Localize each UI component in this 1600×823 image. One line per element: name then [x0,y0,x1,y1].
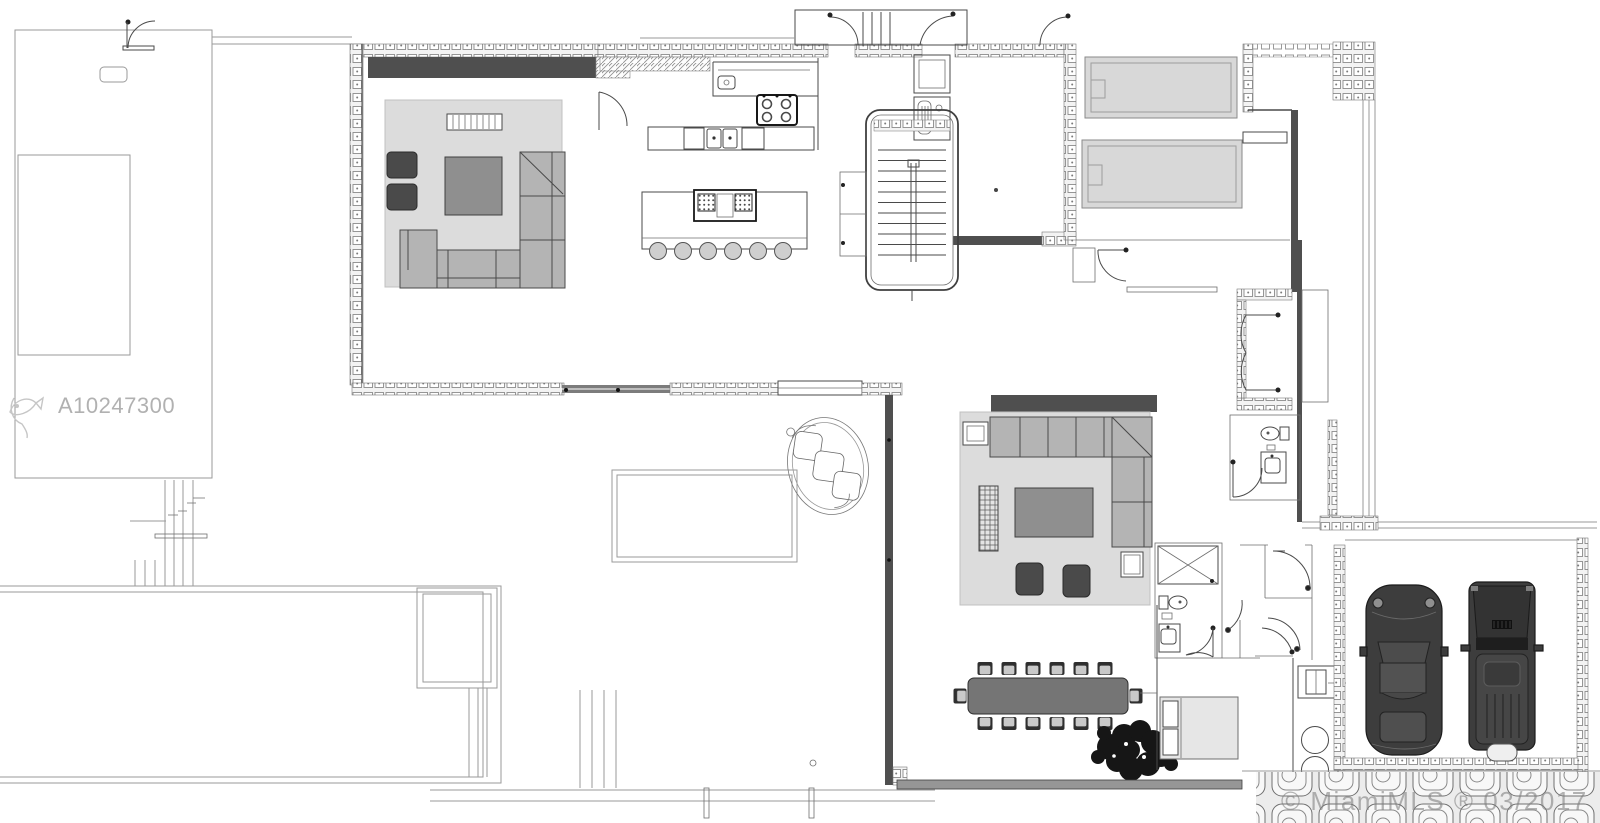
kitchen [600,57,818,260]
dining-chair [1098,662,1113,675]
master-bedrooms [1073,57,1290,292]
laundry-utility [1255,628,1346,790]
dining-chair [1074,662,1089,675]
garage [1334,538,1588,772]
mirror [1534,645,1543,651]
hall-door [1040,14,1071,46]
interior-door [599,92,627,130]
staircase [840,110,998,301]
mirror [1461,645,1470,651]
skylight [100,67,127,82]
ottoman [1063,565,1090,597]
kitchen-island [642,190,807,249]
bar-stool [700,243,717,260]
feature-wall [991,395,1157,412]
dining-chair [954,689,967,704]
window-sill [1127,287,1217,292]
bed [1085,57,1237,118]
media-wall [368,57,596,78]
dining-chair [1026,662,1041,675]
coffee-table [445,157,502,215]
coffee-table [1015,488,1093,537]
pillow [1163,729,1178,755]
suv-car [1461,582,1543,761]
living-room [368,57,630,288]
toilet [1159,596,1187,609]
mirror [1441,647,1448,656]
ottoman [1016,563,1043,595]
kitchen-sink [707,129,737,148]
media-console [447,114,502,130]
bar-stool [775,243,792,260]
powder-door [1231,460,1263,498]
armchair [387,152,417,178]
glass-wall-track [897,780,1242,789]
dining-chair [978,717,993,730]
stair-rail [908,160,919,262]
closet-door [1273,551,1311,591]
dining-chair [1130,689,1143,704]
bar-stool [750,243,767,260]
side-steps [130,480,207,586]
bedroom-door [1073,248,1129,283]
pool-terrace [0,560,501,783]
dining-chair [1002,662,1017,675]
closet-door [1268,618,1300,652]
spa [417,588,497,688]
bed [1160,697,1238,759]
rear-hall [1222,545,1312,660]
watermark-listing-id: A10247300 [58,393,175,418]
sink-counter [648,127,814,150]
cooktop [757,95,797,126]
bar-stool [675,243,692,260]
sports-car [1360,585,1448,755]
bathroom-door [1186,626,1216,658]
sink-vanity [1261,452,1286,483]
shower [1158,546,1218,584]
pillow [1163,701,1178,727]
south-walkway [430,690,935,818]
guest-bathroom [1155,543,1222,658]
toilet [1261,427,1289,440]
bed [1082,140,1242,208]
dining-table [968,678,1128,714]
spiral-lounge-chair [777,409,878,523]
entry-doors [828,12,956,46]
dining-chair [1026,717,1041,730]
armchair [387,184,417,210]
floor-plan-page: A10247300 © MiamiMLS ® 03/2017 [0,0,1600,823]
sink-vanity [1159,624,1180,652]
chaise [400,230,437,288]
mirror [1360,647,1367,656]
hall-double-doors [1241,313,1281,393]
entry-vestibule [640,10,1071,45]
gate-door [123,20,155,51]
dining-chair [1050,717,1065,730]
bar-stool [650,243,667,260]
pillow-stack [979,486,998,551]
powder-room [1230,415,1337,515]
sliding-door-track [562,385,670,393]
nightstand [1243,132,1287,143]
floor-plan-drawing: A10247300 © MiamiMLS ® 03/2017 [0,0,1600,823]
utility-door [1262,628,1295,655]
dining-chair [1074,717,1089,730]
spare-tire [1487,744,1517,761]
family-room [960,395,1157,605]
hall-closet [1237,289,1328,410]
bar-stools [650,243,792,260]
dining-chair [1050,662,1065,675]
washer [1302,727,1329,754]
dining-chair [1002,717,1017,730]
courtyard [612,409,879,562]
dining-chair [978,662,993,675]
watermark-copyright: © MiamiMLS ® 03/2017 [1281,786,1588,816]
small-appliance [718,76,735,89]
bar-stool [725,243,742,260]
